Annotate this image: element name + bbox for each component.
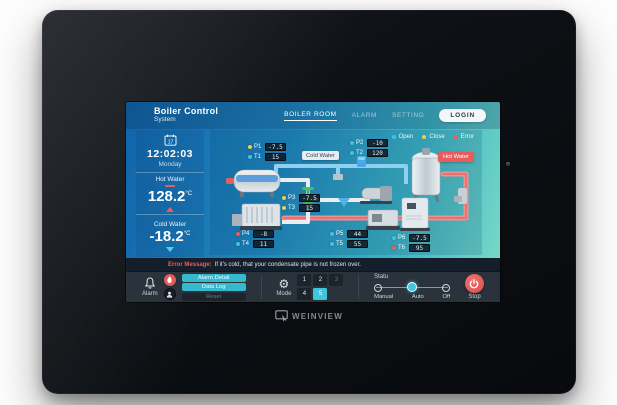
- alarm-indicator-buttons: [164, 274, 176, 300]
- legend-item-open: Open: [392, 134, 414, 140]
- error-message-text: If it's cold, that your condensate pipe …: [215, 262, 361, 268]
- bell-icon: [144, 277, 156, 290]
- sensor-value: -7.5: [409, 234, 430, 242]
- sensor-group-p2-t2: P2 -10 T2 120: [350, 139, 388, 157]
- alarm-ack-button[interactable]: [164, 288, 176, 300]
- sensor-row: P6 -7.5: [392, 234, 430, 242]
- page-background: Boiler Control System BOILER ROOM ALARM …: [0, 0, 617, 405]
- status-dot-icon: [236, 242, 240, 246]
- status-dot-icon: [236, 232, 240, 236]
- boiler-diagram-panel: Open Close Error Cold Water Hot Water: [210, 130, 482, 255]
- legend-label: Open: [399, 134, 414, 140]
- sensor-name: T2: [356, 150, 365, 156]
- stop-label: Stop: [468, 294, 480, 300]
- open-dot-icon: [392, 135, 396, 139]
- sensor-row: T5 55: [330, 240, 368, 248]
- error-message-bar: Error Message: If it's cold, that your c…: [126, 258, 500, 271]
- legend-item-error: Error: [454, 134, 474, 140]
- legend-label: Error: [461, 134, 474, 140]
- sensor-name: T4: [242, 241, 251, 247]
- alarm-fire-button[interactable]: [164, 274, 176, 286]
- sensor-group-p6-t6: P6 -7.5 T6 95: [392, 234, 430, 252]
- sensor-row: P2 -10: [350, 139, 388, 147]
- status-label: Statu: [374, 274, 450, 280]
- nav-tab-alarm[interactable]: ALARM: [352, 112, 377, 119]
- mode-key-3[interactable]: 3: [329, 274, 343, 286]
- stop-group: Stop: [465, 274, 484, 300]
- sensor-group-p5-t5: P5 44 T5 55: [330, 230, 368, 248]
- status-dot-icon: [392, 236, 396, 240]
- sensor-name: P2: [356, 140, 365, 146]
- status-stop-manual[interactable]: [374, 284, 382, 292]
- status-dot-icon: [248, 155, 252, 159]
- sensor-group-p4-t4: P4 -8 T4 11: [236, 230, 274, 248]
- nav-tab-boiler-room[interactable]: BOILER ROOM: [284, 111, 336, 121]
- status-option-auto[interactable]: Auto: [412, 294, 424, 300]
- temp-up-icon: [166, 207, 174, 212]
- weinview-logo-text: WEINVIEW: [292, 312, 343, 321]
- hot-water-unit: °C: [185, 191, 192, 197]
- mode-keypad: 1 2 3 4 5: [297, 274, 343, 300]
- status-option-off[interactable]: Off: [442, 294, 450, 300]
- hot-water-badge: Hot Water: [438, 152, 474, 162]
- legend-label: Close: [429, 134, 444, 140]
- legend-item-close: Close: [422, 134, 444, 140]
- page-subtitle: System: [154, 117, 218, 124]
- status-option-manual[interactable]: Manual: [374, 294, 393, 300]
- mode-key-2[interactable]: 2: [313, 274, 327, 286]
- sensor-row: P4 -8: [236, 230, 274, 238]
- cold-water-number: -18.2: [150, 228, 184, 245]
- main-nav: BOILER ROOM ALARM SETTING LOGIN: [284, 109, 500, 122]
- time-display: 12:02:03: [147, 148, 193, 160]
- sensor-name: T6: [398, 245, 407, 251]
- app-title-block: Boiler Control System: [126, 107, 218, 123]
- status-dot-icon: [350, 151, 354, 155]
- header-bar: Boiler Control System BOILER ROOM ALARM …: [126, 102, 500, 129]
- hmi-screen: Boiler Control System BOILER ROOM ALARM …: [126, 102, 500, 302]
- calendar-icon: 17: [164, 134, 177, 146]
- cold-water-value: -18.2°C: [150, 229, 191, 244]
- gear-icon: ⚙: [279, 278, 290, 290]
- alarm-group: Alarm: [142, 274, 246, 301]
- sensor-row: T3 15: [282, 204, 320, 212]
- alarm-label: Alarm: [142, 291, 158, 297]
- status-dot-icon: [350, 141, 354, 145]
- cold-water-tile: Cold Water -18.2°C: [136, 214, 204, 257]
- close-dot-icon: [422, 135, 426, 139]
- status-option-labels: Manual Auto Off: [374, 294, 450, 300]
- sensor-row: T1 15: [248, 153, 286, 161]
- sensor-value: 15: [299, 204, 320, 212]
- status-dot-icon: [330, 242, 334, 246]
- alarm-button-stack: Alarm Detail Data Log Reset: [182, 274, 246, 301]
- valve-state-legend: Open Close Error: [392, 134, 474, 140]
- sensor-value: -7.5: [299, 194, 320, 202]
- status-dot-icon: [330, 232, 334, 236]
- sensor-name: P5: [336, 231, 345, 237]
- sensor-name: T5: [336, 241, 345, 247]
- cold-water-unit: °C: [184, 231, 191, 237]
- divider: [261, 275, 262, 299]
- control-bar: Alarm: [126, 271, 500, 302]
- status-slider[interactable]: [374, 282, 450, 292]
- sensor-group-p1-t1: P1 -7.5 T1 15: [248, 143, 286, 161]
- status-dot-icon: [248, 145, 252, 149]
- sensor-name: P1: [254, 144, 263, 150]
- hot-water-tile: Hot Water 128.2°C: [136, 172, 204, 215]
- hot-water-value: 128.2°C: [148, 189, 192, 204]
- data-log-button[interactable]: Data Log: [182, 283, 246, 291]
- sensor-row: T2 120: [350, 149, 388, 157]
- brand-block: WEINVIEW: [42, 310, 576, 322]
- flame-icon: [166, 276, 173, 284]
- sensor-value: -10: [367, 139, 388, 147]
- power-icon: [469, 279, 479, 289]
- hmi-device-bezel: Boiler Control System BOILER ROOM ALARM …: [42, 10, 576, 394]
- mode-label: Mode: [276, 291, 291, 297]
- mode-group: ⚙ Mode 1 2 3 4 5: [276, 274, 343, 300]
- status-stop-auto[interactable]: [407, 282, 417, 292]
- sensor-row: P1 -7.5: [248, 143, 286, 151]
- divider: [358, 275, 359, 299]
- weekday-display: Monday: [158, 161, 181, 168]
- hot-water-number: 128.2: [148, 188, 186, 205]
- weinview-logo-icon: [275, 310, 288, 322]
- cold-water-badge: Cold Water: [302, 151, 339, 160]
- sensor-value: 95: [409, 244, 430, 252]
- sensor-name: T3: [288, 205, 297, 211]
- nav-tab-setting[interactable]: SETTING: [392, 112, 424, 119]
- sensor-name: P3: [288, 195, 297, 201]
- hot-water-underline: [165, 185, 175, 187]
- mode-key-4[interactable]: 4: [297, 288, 311, 300]
- sensor-name: T1: [254, 154, 263, 160]
- status-dot-icon: [392, 246, 396, 250]
- sensor-value: -8: [253, 230, 274, 238]
- mode-key-5[interactable]: 5: [313, 288, 327, 300]
- sidebar: 17 12:02:03 Monday Hot Water 128.2°C Col…: [136, 130, 204, 257]
- temp-down-icon: [166, 247, 174, 252]
- sensor-name: P6: [398, 235, 407, 241]
- person-icon: [166, 291, 173, 298]
- sensor-row: P3 -7.5: [282, 194, 320, 202]
- error-dot-icon: [454, 135, 458, 139]
- sensor-value: 44: [347, 230, 368, 238]
- reset-button[interactable]: Reset: [182, 293, 246, 301]
- stop-button[interactable]: [465, 274, 484, 293]
- svg-text:17: 17: [167, 139, 173, 145]
- sensor-value: 11: [253, 240, 274, 248]
- cold-water-label: Cold Water: [154, 221, 186, 228]
- mode-icon-block: ⚙ Mode: [276, 278, 291, 297]
- clock-tile: 17 12:02:03 Monday: [136, 130, 204, 172]
- sensor-value: -7.5: [265, 143, 286, 151]
- sensor-row: T6 95: [392, 244, 430, 252]
- status-dot-icon: [282, 196, 286, 200]
- sensor-value: 120: [367, 149, 388, 157]
- status-dot-icon: [282, 206, 286, 210]
- alarm-detail-button[interactable]: Alarm Detail: [182, 274, 246, 282]
- login-button[interactable]: LOGIN: [439, 109, 486, 122]
- sensor-name: P4: [242, 231, 251, 237]
- sensor-row: T4 11: [236, 240, 274, 248]
- hot-water-label: Hot Water: [155, 176, 184, 183]
- error-message-prefix: Error Message:: [168, 262, 212, 268]
- status-group: Statu Manual Auto Off: [374, 274, 450, 300]
- bezel-indicator-dot: [506, 162, 510, 166]
- alarm-icon-block: Alarm: [142, 277, 158, 297]
- status-stop-off[interactable]: [442, 284, 450, 292]
- sensor-row: P5 44: [330, 230, 368, 238]
- sensor-group-p3-t3: P3 -7.5 T3 15: [282, 194, 320, 212]
- sensor-value: 15: [265, 153, 286, 161]
- mode-key-1[interactable]: 1: [297, 274, 311, 286]
- sensor-value: 55: [347, 240, 368, 248]
